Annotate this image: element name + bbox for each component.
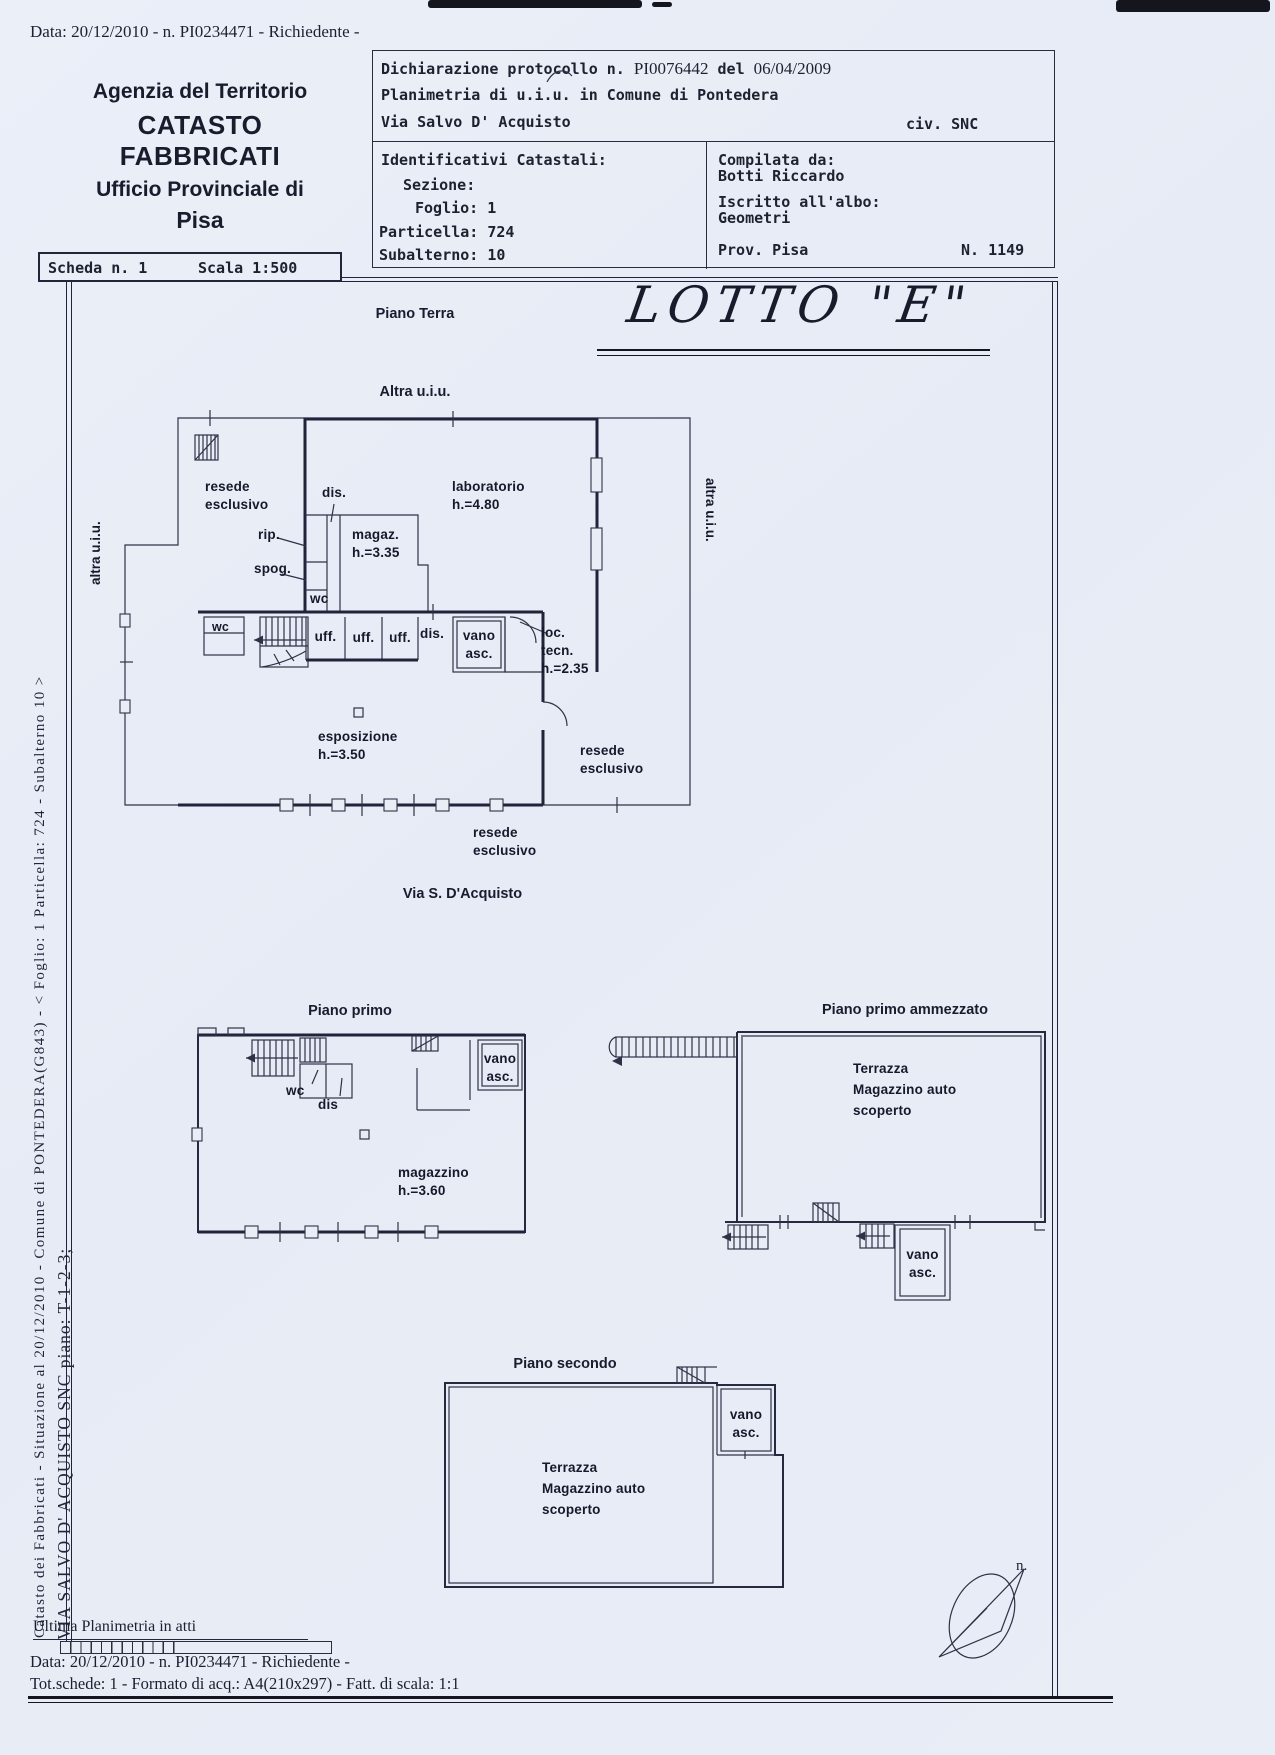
room-label-vano-asc-p1: vano asc. (478, 1050, 522, 1086)
dichiarazione-prefix: Dichiarazione protocollo n. (381, 60, 625, 78)
albo-name: Geometri (718, 209, 790, 227)
room-label-magaz: magaz. h.=3.35 (352, 526, 400, 562)
request-header-line: Data: 20/12/2010 - n. PI0234471 - Richie… (30, 22, 360, 42)
del-label: del (718, 60, 745, 78)
footer-data-line: Data: 20/12/2010 - n. PI0234471 - Richie… (30, 1652, 350, 1672)
room-label-wc-small: wc (212, 619, 229, 636)
protocol-date: 06/04/2009 (754, 59, 831, 78)
footer-rule (28, 1696, 1113, 1703)
sezione-field: Sezione: (403, 176, 475, 194)
cadastral-document-page: Data: 20/12/2010 - n. PI0234471 - Richie… (0, 0, 1275, 1755)
room-label-vano-asc-ammezzato: vano asc. (895, 1246, 950, 1282)
office-line: Ufficio Provinciale di (55, 178, 345, 202)
room-label-dis-p1: dis (318, 1096, 338, 1114)
piano-primo-ammezzato-drawing (610, 1025, 1055, 1310)
planimetria-line: Planimetria di u.i.u. in Comune di Ponte… (381, 86, 778, 104)
room-label-laboratorio: laboratorio h.=4.80 (452, 478, 525, 514)
street-plan-label: Via S. D'Acquisto (370, 886, 555, 902)
room-label-resede-right: resede esclusivo (580, 742, 643, 778)
altra-uiu-right-label: altra u.i.u. (703, 478, 718, 542)
room-label-resede-left: resede esclusivo (205, 478, 268, 514)
protocol-box: Dichiarazione protocollo n. PI0076442 de… (372, 50, 1055, 268)
piano-primo-title: Piano primo (290, 1003, 410, 1019)
frame-right (1052, 281, 1058, 1696)
piano-primo-ammezzato-plan: Terrazza Magazzino auto scoperto vano as… (610, 1025, 1055, 1310)
piano-terra-plan: resede esclusivo dis. laboratorio h.=4.8… (120, 362, 695, 817)
piano-primo-ammezzato-title: Piano primo ammezzato (790, 1002, 1020, 1018)
piano-secondo-plan: vano asc. Terrazza Magazzino auto scoper… (435, 1358, 795, 1593)
room-label-rip: rip. (258, 526, 280, 544)
scan-artifact (428, 0, 642, 8)
room-label-magazzino: magazzino h.=3.60 (398, 1164, 469, 1200)
handwritten-mark (545, 67, 575, 85)
lotto-underline (597, 349, 990, 356)
frame-top (342, 277, 1058, 282)
ultima-underline (33, 1639, 308, 1640)
room-label-uff-3: uff. (382, 629, 418, 647)
ultima-planimetria-line: Ultima Planimetria in atti (33, 1618, 196, 1636)
room-label-dis-top: dis. (322, 484, 346, 502)
handwritten-lotto-label: LOTTO "E" (595, 276, 1004, 334)
room-label-wc-top: wc (310, 590, 328, 608)
catasto-title: CATASTO FABBRICATI (55, 110, 345, 172)
civic-number: civ. SNC (906, 115, 978, 133)
room-label-wc-p1: wc (286, 1082, 304, 1100)
compiler-name: Botti Riccardo (718, 167, 844, 185)
room-label-terrazza-ammezzato: Terrazza Magazzino auto scoperto (853, 1059, 956, 1122)
room-label-vano-asc: vano asc. (453, 627, 505, 663)
room-label-uff-2: uff. (345, 629, 382, 647)
room-label-terrazza-p2: Terrazza Magazzino auto scoperto (542, 1458, 645, 1521)
street-line: Via Salvo D' Acquisto (381, 113, 571, 131)
box-vertical-divider (706, 141, 707, 269)
room-label-spog: spog. (254, 560, 291, 578)
albo-number: N. 1149 (961, 241, 1024, 259)
particella-field: Particella: 724 (379, 223, 514, 241)
dichiarazione-line: Dichiarazione protocollo n. PI0076442 de… (381, 59, 831, 79)
prov-field: Prov. Pisa (718, 241, 808, 259)
altra-uiu-left-label: altra u.i.u. (88, 521, 103, 585)
footer-tot-line: Tot.schede: 1 - Formato di acq.: A4(210x… (30, 1674, 460, 1694)
scan-artifact (652, 2, 672, 7)
resede-bottom-label: resede esclusivo (473, 824, 536, 860)
identificativi-title: Identificativi Catastali: (381, 151, 607, 169)
scan-artifact (1116, 0, 1270, 12)
piano-primo-plan: vano asc. wc dis magazzino h.=3.60 (190, 1028, 535, 1243)
room-label-uff-1: uff. (306, 628, 345, 646)
agency-name: Agenzia del Territorio (55, 80, 345, 104)
protocol-number: PI0076442 (634, 59, 709, 78)
foglio-field: Foglio: 1 (415, 199, 496, 217)
north-label: n. (1016, 1558, 1027, 1575)
scheda-number: Scheda n. 1 (48, 259, 147, 277)
piano-terra-title: Piano Terra (355, 306, 475, 322)
scala-value: Scala 1:500 (198, 259, 297, 277)
margin-text-address: VIA SALVO D' ACQUISTO SNC piano: T-1-2-3… (54, 1248, 75, 1640)
room-label-vano-asc-p2: vano asc. (721, 1406, 771, 1442)
box-horizontal-divider (373, 141, 1054, 142)
province-name: Pisa (55, 207, 345, 234)
margin-text-catasto: Catasto dei Fabbricati - Situazione al 2… (32, 675, 49, 1638)
scheda-box: Scheda n. 1 Scala 1:500 (38, 252, 342, 282)
room-label-dis-mid: dis. (420, 625, 444, 643)
room-label-esposizione: esposizione h.=3.50 (318, 728, 397, 764)
subalterno-field: Subalterno: 10 (379, 246, 505, 264)
agency-heading: Agenzia del Territorio CATASTO FABBRICAT… (55, 80, 345, 234)
room-label-loc-tecn: loc. tecn. h.=2.35 (541, 624, 589, 677)
